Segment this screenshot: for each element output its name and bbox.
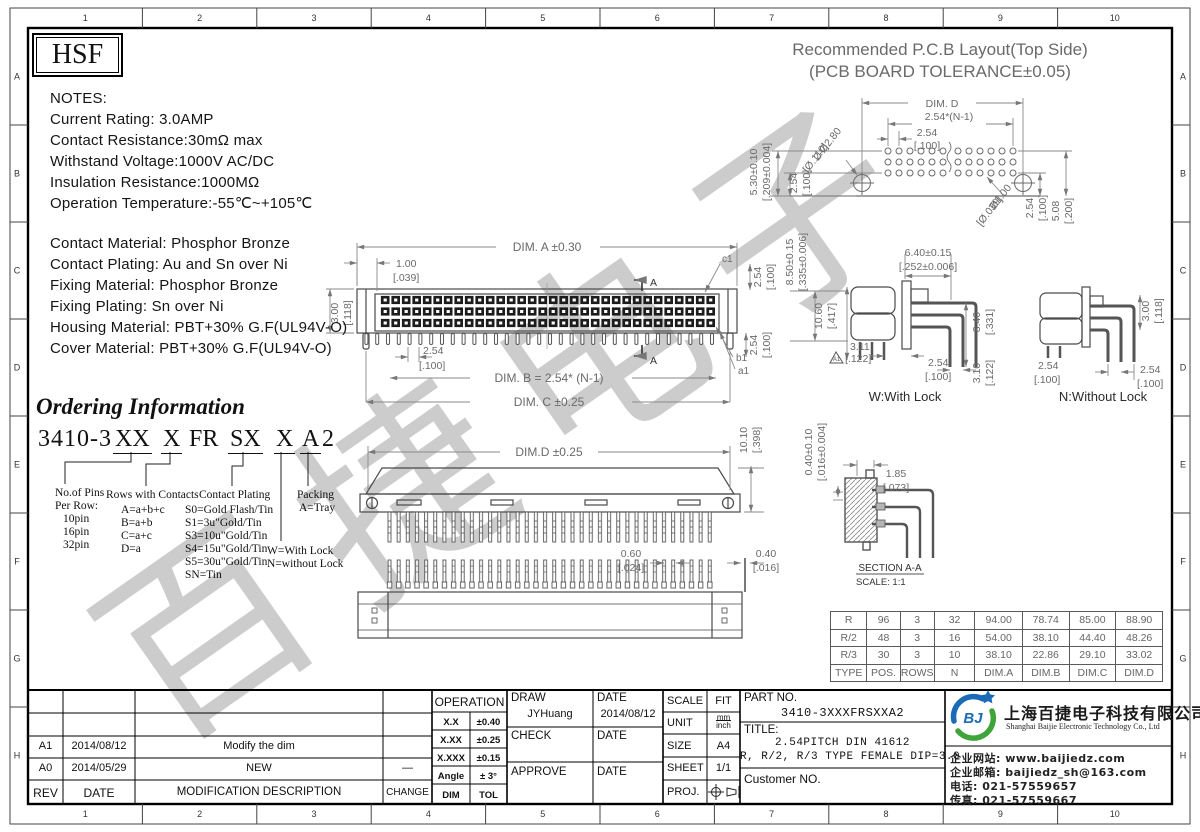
group-title: Packing (297, 489, 335, 502)
cell: 33.02 (1116, 647, 1163, 665)
cell: 10 (934, 647, 975, 665)
cell: 94.00 (975, 612, 1023, 630)
company-fax: 传真: 021-57559667 (950, 792, 1077, 808)
rev-change: — (383, 762, 432, 774)
proj-label: PROJ. (667, 786, 699, 798)
header-cell: TYPE (831, 664, 867, 682)
group-item: S1=3u"Gold/Tin (185, 517, 273, 530)
rev-header: REV (28, 786, 63, 800)
header-cell: ROWS (900, 664, 934, 682)
tol-val: ±0.15 (470, 753, 507, 764)
cell: 29.10 (1069, 647, 1116, 665)
cell: 32 (934, 612, 975, 630)
ordering-group-lock: W=With Lock N=without Lock (267, 545, 343, 571)
ordering-group-plating: Contact Plating S0=Gold Flash/Tin S1=3u"… (185, 489, 273, 582)
cell: 48 (867, 629, 900, 647)
cell: 38.10 (1022, 629, 1069, 647)
company-name-en: Shanghai Baijie Electronic Technology Co… (1006, 722, 1160, 731)
group-title: Contact Plating (199, 489, 273, 502)
group-item: S0=Gold Flash/Tin (185, 504, 273, 517)
code-suffix: 2 (322, 426, 334, 453)
cell: 3 (900, 647, 934, 665)
pcb-layout-subtitle: (PCB BOARD TOLERANCE±0.05) (755, 62, 1125, 82)
sheet-label: SHEET (667, 762, 704, 774)
material-line: Contact Plating: Au and Sn over Ni (50, 254, 347, 275)
date-label: DATE (597, 730, 627, 742)
note-line: Current Rating: 3.0AMP (50, 109, 312, 130)
part-title-line1: 2.54PITCH DIN 41612 (740, 737, 945, 749)
note-line: Withstand Voltage:1000V AC/DC (50, 151, 312, 172)
cell: 54.00 (975, 629, 1023, 647)
cell: 3 (900, 629, 934, 647)
code-base: 3410-3 (38, 426, 112, 453)
company-name-cn: 上海百捷电子科技有限公司 (1004, 700, 1200, 724)
group-item: 16pin (63, 526, 104, 539)
cell: 48.26 (1116, 629, 1163, 647)
header-cell: N (934, 664, 975, 682)
unit-value: mminch (707, 714, 740, 729)
table-header-row: TYPE POS. ROWS N DIM.A DIM.B DIM.C DIM.D (831, 664, 1163, 682)
note-line: Contact Resistance:30mΩ max (50, 130, 312, 151)
rev-date: 2014/08/12 (63, 740, 135, 752)
code-field-rows: X (161, 426, 182, 454)
cell: 78.74 (1022, 612, 1069, 630)
group-item: S3=10u"Gold/Tin (185, 530, 273, 543)
tol-dim: X.XX (433, 735, 469, 746)
spec-table: R 96 3 32 94.00 78.74 85.00 88.90 R/2 48… (830, 611, 1163, 682)
group-item: 32pin (63, 539, 104, 552)
sheet-value: 1/1 (707, 762, 740, 774)
rev-desc: Modify the dim (135, 740, 383, 752)
cell: R (831, 612, 867, 630)
header-cell: DIM.C (1069, 664, 1116, 682)
rev-desc: NEW (135, 762, 383, 774)
tolerance-title: OPERATION (432, 695, 507, 709)
scale-value: FIT (707, 695, 740, 707)
cell: R/2 (831, 629, 867, 647)
tol-val: ±0.40 (470, 717, 507, 728)
size-label: SIZE (667, 740, 691, 752)
materials-block: Contact Material: Phosphor Bronze Contac… (50, 233, 347, 359)
rev-header: DATE (63, 786, 135, 800)
hsf-logo-text: HSF (36, 37, 119, 73)
cell: 3 (900, 612, 934, 630)
header-cell: DIM.D (1116, 664, 1163, 682)
cell: 88.90 (1116, 612, 1163, 630)
code-field-lock: X (274, 426, 295, 454)
group-item: W=With Lock (267, 545, 343, 558)
code-field-plating: SX (228, 426, 263, 454)
cell: 16 (934, 629, 975, 647)
draw-date: 2014/08/12 (593, 708, 663, 720)
notes-block: NOTES: Current Rating: 3.0AMP Contact Re… (50, 88, 312, 214)
cell: R/3 (831, 647, 867, 665)
draw-label: DRAW (511, 692, 546, 704)
group-item: A=Tray (299, 502, 335, 515)
cell: 85.00 (1069, 612, 1116, 630)
material-line: Fixing Plating: Sn over Ni (50, 296, 347, 317)
cell: 22.86 (1022, 647, 1069, 665)
tol-val: ±0.25 (470, 735, 507, 746)
note-line: Insulation Resistance:1000MΩ (50, 172, 312, 193)
title-label: TITLE: (744, 724, 779, 736)
group-item: SN=Tin (185, 569, 273, 582)
group-item: S4=15u"Gold/Tin (185, 543, 273, 556)
tol-dim: Angle (433, 771, 469, 782)
header-cell: DIM.A (975, 664, 1023, 682)
tol-val: TOL (470, 790, 507, 801)
group-item: S5=30u"Gold/Tin (185, 556, 273, 569)
group-title: No.of Pins (55, 487, 104, 500)
material-line: Cover Material: PBT+30% G.F(UL94V-O) (50, 338, 347, 359)
material-line: Fixing Material: Phosphor Bronze (50, 275, 347, 296)
cell: 44.40 (1069, 629, 1116, 647)
note-line: Operation Temperature:-55℃~+105℃ (50, 193, 312, 214)
rev-id: A0 (28, 762, 63, 774)
rev-id: A1 (28, 740, 63, 752)
part-title-line2: R, R/2, R/3 TYPE FEMALE DIP=3.0 (740, 751, 945, 763)
text-layer: HSF NOTES: Current Rating: 3.0AMP Contac… (0, 0, 1200, 832)
cell: 96 (867, 612, 900, 630)
code-field-packing: A (300, 426, 321, 454)
draw-name: JYHuang (507, 708, 593, 720)
customer-no-label: Customer NO. (744, 772, 821, 786)
date-label: DATE (597, 692, 627, 704)
ordering-group-pins: No.of Pins Per Row: 10pin 16pin 32pin (55, 487, 104, 552)
unit-label: UNIT (667, 717, 693, 729)
tol-val: ± 3° (470, 771, 507, 782)
rev-header: CHANGE (383, 787, 432, 798)
tol-dim: DIM (433, 790, 469, 801)
group-subtitle: Per Row: (55, 500, 104, 513)
check-label: CHECK (511, 730, 551, 742)
size-value: A4 (707, 740, 740, 752)
table-row: R/3 30 3 10 38.10 22.86 29.10 33.02 (831, 647, 1163, 665)
part-number: 3410-3XXXFRSXXA2 (740, 706, 945, 720)
tol-dim: X.X (433, 717, 469, 728)
scale-label: SCALE (667, 695, 703, 707)
code-field-fr: FR (189, 426, 218, 453)
pcb-layout-title: Recommended P.C.B Layout(Top Side) (755, 40, 1125, 60)
ordering-title: Ordering Information (36, 394, 245, 420)
code-field-pins: XX (113, 426, 152, 454)
date-label: DATE (597, 766, 627, 778)
approve-label: APPROVE (511, 766, 567, 778)
material-line: Contact Material: Phosphor Bronze (50, 233, 347, 254)
header-cell: POS. (867, 664, 900, 682)
material-line: Housing Material: PBT+30% G.F(UL94V-O) (50, 317, 347, 338)
cell: 38.10 (975, 647, 1023, 665)
tol-dim: X.XXX (433, 753, 469, 764)
rev-header: MODIFICATION DESCRIPTION (135, 786, 383, 798)
notes-title: NOTES: (50, 88, 312, 109)
header-cell: DIM.B (1022, 664, 1069, 682)
unit-inch: inch (716, 720, 731, 730)
engineering-drawing-sheet: 百捷电子 1122334455667788991010AABBCCDDEEFFG… (0, 0, 1200, 832)
table-row: R/2 48 3 16 54.00 38.10 44.40 48.26 (831, 629, 1163, 647)
hsf-logo-box: HSF (32, 33, 123, 77)
group-item: 10pin (63, 513, 104, 526)
group-item: N=without Lock (267, 558, 343, 571)
table-row: R 96 3 32 94.00 78.74 85.00 88.90 (831, 612, 1163, 630)
ordering-group-packing: Packing A=Tray (297, 489, 335, 515)
rev-date: 2014/05/29 (63, 762, 135, 774)
cell: 30 (867, 647, 900, 665)
part-no-label: PART NO. (744, 692, 797, 704)
